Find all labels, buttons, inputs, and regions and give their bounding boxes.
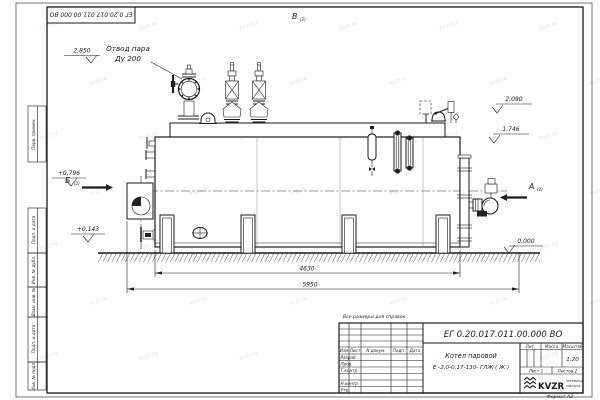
view-label-v: В (2) <box>292 12 306 22</box>
row-label: Пров. <box>341 362 353 367</box>
watermark-text: kvzr.ru <box>139 350 159 362</box>
scale-value: 1:20 <box>566 357 579 363</box>
callout-line1: Отвод пара <box>106 44 150 53</box>
scale-header: Масштаб <box>563 344 583 349</box>
level-value: 2,850 <box>73 48 90 55</box>
watermark-text: kvzr.ru <box>39 130 59 142</box>
foot <box>160 215 174 253</box>
col-header: Дата <box>409 348 421 353</box>
watermark-text: kvzr.ru <box>89 75 109 87</box>
view-letter: В <box>292 12 297 21</box>
product-name: Котел паровой <box>445 352 497 360</box>
sheet-number: Лист 1 <box>528 369 544 374</box>
col-header: N докум. <box>366 348 385 353</box>
drawing-canvas: kvzr.rukvzr.rukvzr.rukvzr.rukvzr.rukvzr.… <box>0 0 600 400</box>
watermark-text: kvzr.ru <box>239 20 259 32</box>
level-sensor <box>448 102 454 124</box>
level-mark: 1,746 <box>489 126 529 143</box>
boiler-platform <box>170 123 445 137</box>
watermark-text: kvzr.ru <box>439 20 459 32</box>
reference-note: Все размеры для справок <box>343 314 406 320</box>
view-letter: А <box>528 182 534 191</box>
boiler-side-view <box>127 62 507 253</box>
dim-value: 5950 <box>302 282 317 289</box>
handwheel <box>171 75 179 93</box>
format-label: Формат А3 <box>547 394 573 400</box>
dim-value: 4630 <box>299 266 314 273</box>
watermark-text: kvzr.ru <box>589 295 600 307</box>
view-sheet-ref: (2) <box>537 187 543 192</box>
steam-outlet-valve <box>171 65 200 119</box>
level-mark: +0,143 <box>71 226 105 242</box>
manhole <box>192 227 208 239</box>
drawing-sheet: kvzr.rukvzr.rukvzr.rukvzr.rukvzr.rukvzr.… <box>0 0 600 400</box>
watermark-text: kvzr.ru <box>389 75 409 87</box>
watermark-text: kvzr.ru <box>39 240 59 252</box>
watermark-text: kvzr.ru <box>539 20 559 32</box>
row-label: Т.контр. <box>341 368 359 373</box>
doc-number: ЕГ 0.20.017.011.00.000 ВО <box>444 330 563 340</box>
mass-header: Масса <box>545 344 559 349</box>
watermark-text: kvzr.ru <box>239 350 259 362</box>
doc-number-rotated: ЕГ 0.20.017.011.00.000 ВО <box>49 11 132 18</box>
level-mark: 2,850 <box>64 48 100 64</box>
ground <box>98 253 540 262</box>
logo-text: KVZR <box>538 382 565 392</box>
level-value: 1,746 <box>502 126 519 133</box>
watermark-text: kvzr.ru <box>539 350 559 362</box>
side-stamp-label: Взам. инв. № <box>31 287 36 316</box>
row-label: Разраб. <box>341 355 357 360</box>
logo-subtext-2: ЗАВОД РФ <box>566 384 581 388</box>
watermark-layer: kvzr.rukvzr.rukvzr.rukvzr.rukvzr.rukvzr.… <box>39 20 600 362</box>
level-mark: 0,000 <box>504 238 543 253</box>
foot <box>241 215 255 253</box>
level-value: +0,143 <box>77 226 99 233</box>
level-value: 2,090 <box>505 96 522 103</box>
safety-valve <box>250 62 268 122</box>
watermark-text: kvzr.ru <box>389 295 409 307</box>
logo-subtext-1: КОТЕЛЬНЫЙ <box>566 378 584 383</box>
side-stamp-label: Подп. и дата <box>31 215 36 244</box>
watermark-text: kvzr.ru <box>489 75 509 87</box>
col-header: Изм <box>340 348 349 353</box>
row-label: Утв. <box>341 388 350 393</box>
col-header: Подп. <box>393 348 406 353</box>
safety-valve <box>223 62 241 122</box>
view-letter: Б <box>65 176 70 185</box>
dome <box>199 113 217 124</box>
side-stamp-label: Инв. № подл. <box>31 362 36 391</box>
manufacturer-logo: KVZR КОТЕЛЬНЫЙ ЗАВОД РФ <box>524 378 584 393</box>
col-header: Лист <box>349 348 361 353</box>
rear-flanged-pipe <box>457 155 472 247</box>
product-designation: Е -2,0-0,17-130- ГЛЖ ( Ж ) <box>433 365 509 371</box>
watermark-text: kvzr.ru <box>139 130 159 142</box>
view-sheet-ref: (2) <box>74 181 80 186</box>
watermark-text: kvzr.ru <box>89 295 109 307</box>
right-top-fittings <box>420 101 458 123</box>
watermark-text: kvzr.ru <box>189 295 209 307</box>
level-value: 0,000 <box>517 238 534 245</box>
view-labels: В (2) Б (2) А (2) <box>65 12 543 201</box>
level-mark: 2,090 <box>492 96 532 113</box>
watermark-text: kvzr.ru <box>489 295 509 307</box>
row-label: Н.контр. <box>341 381 360 386</box>
side-stamp-label: Подп. и дата <box>31 324 36 353</box>
lit-header: Лит. <box>525 344 536 349</box>
burner <box>127 183 153 219</box>
watermark-text: kvzr.ru <box>339 20 359 32</box>
blowdown-valve <box>141 227 155 242</box>
watermark-text: kvzr.ru <box>589 185 600 197</box>
watermark-text: kvzr.ru <box>539 130 559 142</box>
steam-outlet-callout: Отвод пара Ду 200 <box>106 44 182 79</box>
view-sheet-ref: (2) <box>300 17 306 22</box>
watermark-text: kvzr.ru <box>289 295 309 307</box>
watermark-text: kvzr.ru <box>139 20 159 32</box>
pump-unit <box>469 179 498 217</box>
small-fitting <box>454 115 459 120</box>
side-stamp-label: Перв. примен. <box>31 118 36 149</box>
watermark-text: kvzr.ru <box>589 75 600 87</box>
foot <box>342 215 356 253</box>
watermark-text: kvzr.ru <box>39 20 59 32</box>
sheets-total: Листов 2 <box>557 369 578 374</box>
side-stamp-label: Инв. № дубл. <box>31 256 36 285</box>
doc-number-top-box: ЕГ 0.20.017.011.00.000 ВО <box>47 7 135 23</box>
callout-line2: Ду 200 <box>114 54 141 63</box>
watermark-text: kvzr.ru <box>289 75 309 87</box>
foot <box>436 215 450 253</box>
watermark-text: kvzr.ru <box>39 350 59 362</box>
watermark-text: kvzr.ru <box>139 240 159 252</box>
